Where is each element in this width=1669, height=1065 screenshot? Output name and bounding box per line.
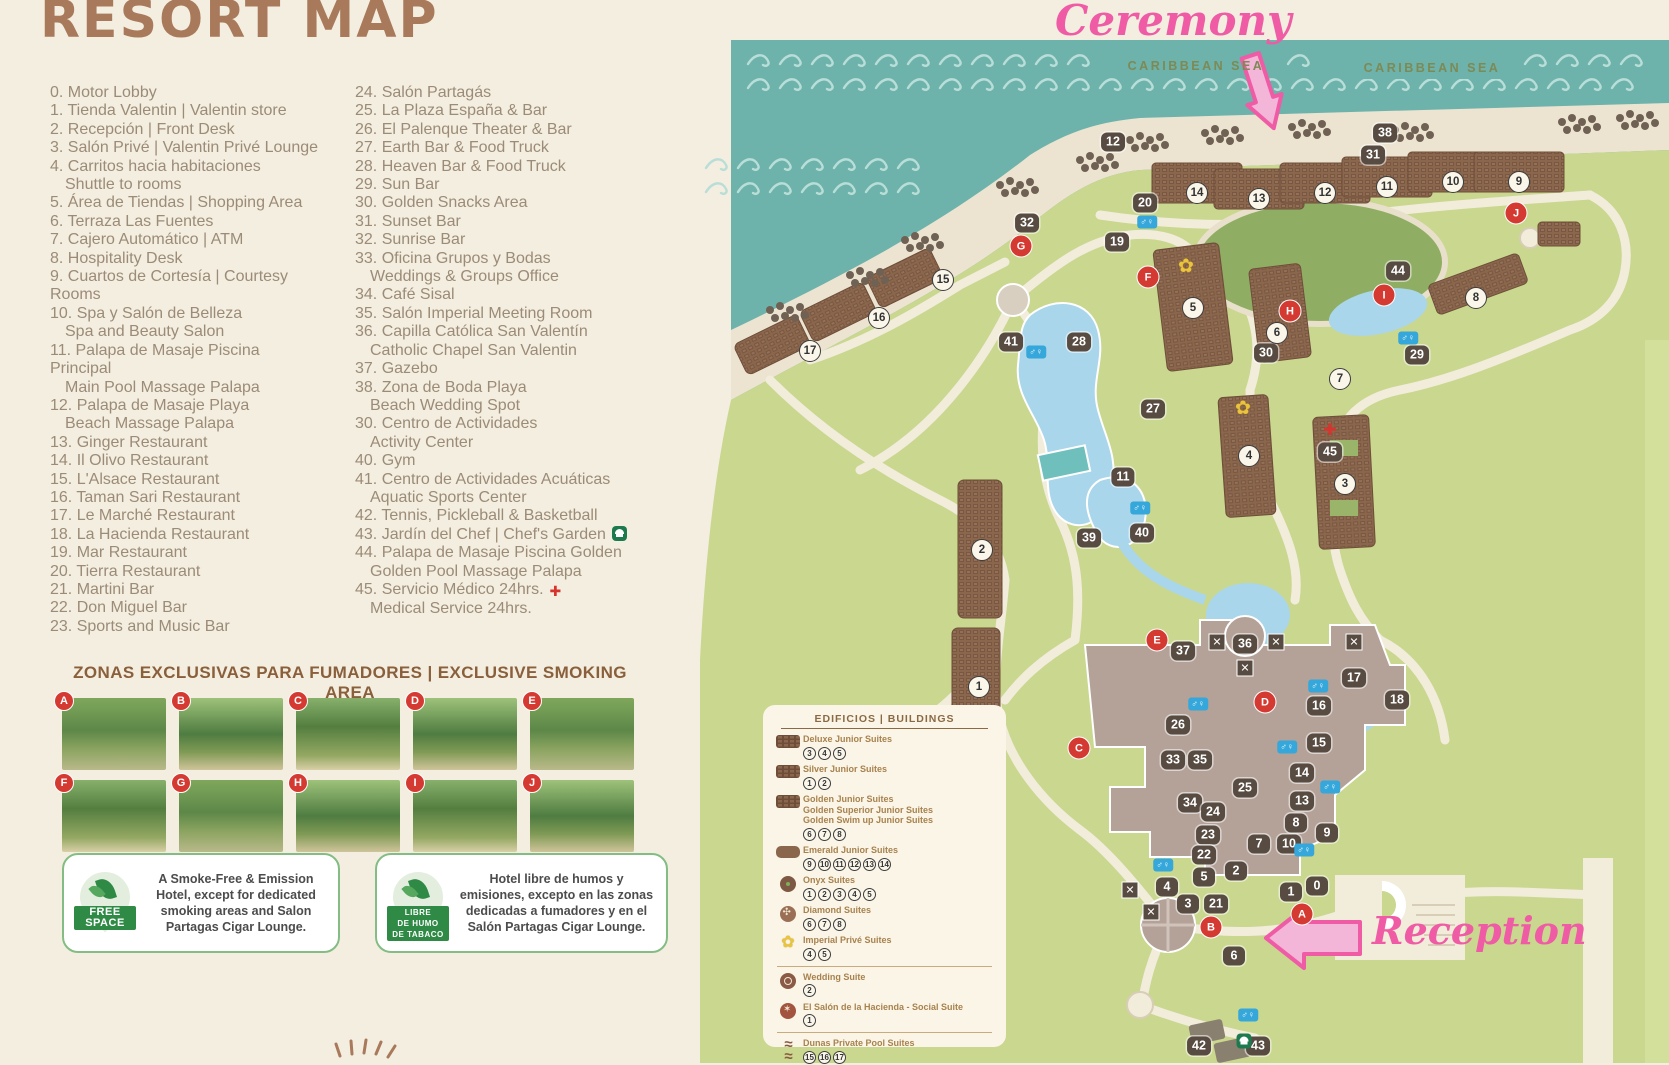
restroom-icon: ♂♀	[1137, 216, 1157, 229]
smoking-area-photo-D: D	[413, 698, 517, 770]
legend-unit-number: 15	[803, 1051, 816, 1064]
facility-badge-22: 22	[1192, 846, 1216, 865]
facility-badge-18: 18	[1385, 691, 1409, 710]
trellis-icon: ✕	[1143, 904, 1160, 921]
smoking-area-photo-F: F	[62, 780, 166, 852]
medical-cross-icon: ✚	[1323, 420, 1336, 440]
directory-item: 0. Motor Lobby	[50, 84, 352, 102]
medical-icon: ✚	[550, 582, 562, 600]
directory-item: 44. Palapa de Masaje Piscina GoldenGolde…	[355, 544, 690, 581]
facility-badge-11: 11	[1111, 468, 1134, 487]
facility-badge-2: 2	[1225, 862, 1247, 881]
smoking-area-photo-A: A	[62, 698, 166, 770]
directory-line: Medical Service 24hrs.	[355, 600, 690, 618]
directory-line: Beach Massage Palapa	[50, 415, 352, 433]
directory-item: 3. Salón Privé | Valentin Privé Lounge	[50, 139, 352, 157]
photo-letter-badge: H	[288, 773, 308, 793]
photo-letter-badge: I	[405, 773, 425, 793]
directory-line: Shuttle to rooms	[50, 176, 352, 194]
legend-row-golden: Golden Junior SuitesGolden Superior Juni…	[773, 794, 996, 841]
facility-badge-23: 23	[1196, 826, 1220, 845]
directory-line: 19. Mar Restaurant	[50, 544, 352, 562]
directory-line: 1. Tienda Valentin | Valentin store	[50, 102, 352, 120]
directory-line: 35. Salón Imperial Meeting Room	[355, 305, 690, 323]
directory-line: 42. Tennis, Pickleball & Basketball	[355, 507, 690, 525]
smoking-letter-I: I	[1373, 284, 1396, 307]
directory-item: 4. Carritos hacia habitacionesShuttle to…	[50, 158, 352, 195]
legend-unit-number: 5	[863, 888, 876, 901]
directory-line: 32. Sunrise Bar	[355, 231, 690, 249]
facility-badge-1: 1	[1280, 883, 1302, 902]
directory-item: 7. Cajero Automático | ATM	[50, 231, 352, 249]
directory-item: 9. Cuartos de Cortesía | CourtesyRooms	[50, 268, 352, 305]
directory-item: 21. Martini Bar	[50, 581, 352, 599]
directory-line: 31. Sunset Bar	[355, 213, 690, 231]
directory-line: 29. Sun Bar	[355, 176, 690, 194]
facility-badge-31: 31	[1361, 146, 1385, 165]
directory-item: 2. Recepción | Front Desk	[50, 121, 352, 139]
directory-item: 45. Servicio Médico 24hrs.✚Medical Servi…	[355, 581, 690, 619]
diamond-suite-icon	[773, 905, 803, 931]
facility-badge-32: 32	[1015, 214, 1039, 233]
smoke-free-text-en: A Smoke-Free & Emission Hotel, except fo…	[144, 871, 328, 935]
legend-row-deluxe: Deluxe Junior Suites345	[773, 734, 996, 760]
facility-badge-8: 8	[1285, 814, 1307, 833]
directory-line: 14. Il Olivo Restaurant	[50, 452, 352, 470]
smoking-letter-H: H	[1279, 300, 1302, 323]
legend-unit-number: 5	[818, 948, 831, 961]
directory-line: 4. Carritos hacia habitaciones	[50, 158, 352, 176]
legend-row-emerald: Emerald Junior Suites91011121314	[773, 845, 996, 871]
legend-unit-number: 13	[863, 858, 876, 871]
directory-item: 22. Don Miguel Bar	[50, 599, 352, 617]
smoking-letter-F: F	[1137, 266, 1160, 289]
facility-badge-24: 24	[1201, 803, 1225, 822]
building-circle-16: 16	[868, 307, 890, 329]
facility-badge-39: 39	[1077, 529, 1101, 548]
directory-item: 42. Tennis, Pickleball & Basketball	[355, 507, 690, 525]
ceremony-annotation: Ceremony	[1055, 0, 1275, 45]
legend-unit-number: 4	[818, 747, 831, 760]
trellis-icon: ✕	[1268, 634, 1285, 651]
photo-letter-badge: J	[522, 773, 542, 793]
legend-label: El Salón de la Hacienda - Social Suite	[803, 1002, 996, 1013]
directory-line: 13. Ginger Restaurant	[50, 434, 352, 452]
directory-line: Main Pool Massage Palapa	[50, 379, 352, 397]
smoking-area-photo-H: H	[296, 780, 400, 852]
legend-label: Imperial Privé Suites	[803, 935, 996, 946]
legend-unit-number: 4	[803, 948, 816, 961]
legend-label: Golden Swim up Junior Suites	[803, 815, 996, 826]
smoking-area-photo-G: G	[179, 780, 283, 852]
facility-badge-30: 30	[1254, 344, 1278, 363]
directory-item: 19. Mar Restaurant	[50, 544, 352, 562]
legend-unit-number: 3	[803, 747, 816, 760]
facility-badge-36: 36	[1233, 635, 1257, 654]
photo-letter-badge: C	[288, 691, 308, 711]
facility-badge-28: 28	[1067, 333, 1091, 352]
directory-item: 20. Tierra Restaurant	[50, 563, 352, 581]
legend-unit-number: 11	[833, 858, 846, 871]
facility-badge-17: 17	[1342, 669, 1366, 688]
smoking-area-photo-I: I	[413, 780, 517, 852]
libre-badge: LIBREDE HUMODE TABACO	[387, 906, 449, 941]
legend-label: Emerald Junior Suites	[803, 845, 996, 856]
directory-line: 15. L'Alsace Restaurant	[50, 471, 352, 489]
smoking-letter-E: E	[1146, 629, 1169, 652]
smoking-letter-C: C	[1068, 737, 1091, 760]
legend-label: Dunas Private Pool Suites	[803, 1038, 996, 1049]
photo-letter-badge: E	[522, 691, 542, 711]
restroom-icon: ♂♀	[1320, 781, 1340, 794]
directory-line: 17. Le Marché Restaurant	[50, 507, 352, 525]
directory-item: 18. La Hacienda Restaurant	[50, 526, 352, 544]
legend-unit-number: 9	[803, 858, 816, 871]
directory-line: Rooms	[50, 286, 352, 304]
directory-item: 36. Capilla Católica San ValentínCatholi…	[355, 323, 690, 360]
directory-item: 37. Gazebo	[355, 360, 690, 378]
buildings-legend: EDIFICIOS | BUILDINGS Deluxe Junior Suit…	[763, 705, 1006, 1047]
caribbean-sea-label-1: CARIBBEAN SEA	[1128, 59, 1265, 73]
legend-unit-number: 7	[818, 828, 831, 841]
facility-badge-16: 16	[1307, 697, 1331, 716]
legend-unit-number: 6	[803, 918, 816, 931]
legend-unit-number: 8	[833, 828, 846, 841]
directory-item: 26. El Palenque Theater & Bar	[355, 121, 690, 139]
building-circle-5: 5	[1182, 297, 1204, 319]
smoke-free-box-en: FREESPACE A Smoke-Free & Emission Hotel,…	[62, 853, 340, 953]
legend-label: Onyx Suites	[803, 875, 996, 886]
directory-line: 20. Tierra Restaurant	[50, 563, 352, 581]
directory-item: 35. Salón Imperial Meeting Room	[355, 305, 690, 323]
directory-item: 29. Sun Bar	[355, 176, 690, 194]
building-circle-3: 3	[1334, 473, 1356, 495]
facility-badge-44: 44	[1386, 262, 1410, 281]
facility-badge-14: 14	[1290, 764, 1314, 783]
imperial-flower-icon: ✿	[1178, 255, 1194, 277]
directory-line: 8. Hospitality Desk	[50, 250, 352, 268]
golden-suite-icon	[773, 794, 803, 841]
directory-item: 5. Área de Tiendas | Shopping Area	[50, 194, 352, 212]
chef-icon	[612, 526, 627, 541]
emerald-suite-icon	[773, 845, 803, 871]
directory-line: 26. El Palenque Theater & Bar	[355, 121, 690, 139]
legend-row-diamond: Diamond Suites678	[773, 905, 996, 931]
facility-badge-21: 21	[1204, 895, 1228, 914]
facility-badge-20: 20	[1133, 194, 1157, 213]
silver-suite-icon	[773, 764, 803, 790]
smoking-letter-B: B	[1200, 916, 1223, 939]
directory-line: 43. Jardín del Chef | Chef's Garden	[355, 526, 690, 544]
smoking-letter-D: D	[1254, 691, 1277, 714]
resort-map-page: { "title": "RESORT MAP", "directory": { …	[0, 0, 1669, 1063]
imperial-flower-icon: ✿	[1235, 397, 1251, 419]
directory-line: 16. Taman Sari Restaurant	[50, 489, 352, 507]
directory-line: 9. Cuartos de Cortesía | Courtesy	[50, 268, 352, 286]
restroom-icon: ♂♀	[1026, 346, 1046, 359]
building-circle-7: 7	[1329, 368, 1351, 390]
directory-line: 27. Earth Bar & Food Truck	[355, 139, 690, 157]
directory-item: 27. Earth Bar & Food Truck	[355, 139, 690, 157]
deluxe-suite-icon	[773, 734, 803, 760]
facility-badge-40: 40	[1130, 524, 1154, 543]
facility-badge-12: 12	[1101, 133, 1125, 152]
directory-line: 6. Terraza Las Fuentes	[50, 213, 352, 231]
directory-line: Activity Center	[355, 434, 690, 452]
directory-column-2: 24. Salón Partagás25. La Plaza España & …	[355, 84, 690, 619]
legend-unit-number: 1	[803, 1014, 816, 1027]
trellis-icon: ✕	[1122, 882, 1139, 899]
legend-unit-number: 10	[818, 858, 831, 871]
directory-line: 34. Café Sisal	[355, 286, 690, 304]
directory-item: 31. Sunset Bar	[355, 213, 690, 231]
directory-line: Aquatic Sports Center	[355, 489, 690, 507]
legend-label: Wedding Suite	[803, 972, 996, 983]
building-circle-2: 2	[971, 539, 993, 561]
facility-badge-6: 6	[1223, 947, 1245, 966]
smoking-area-photo-C: C	[296, 698, 400, 770]
directory-line: 30. Centro de Actividades	[355, 415, 690, 433]
directory-line: 18. La Hacienda Restaurant	[50, 526, 352, 544]
directory-line: 22. Don Miguel Bar	[50, 599, 352, 617]
directory-line: 41. Centro de Actividades Acuáticas	[355, 471, 690, 489]
legend-unit-number: 2	[818, 777, 831, 790]
photo-letter-badge: G	[171, 773, 191, 793]
buildings-legend-title: EDIFICIOS | BUILDINGS	[781, 713, 988, 729]
legend-label: Golden Superior Junior Suites	[803, 805, 996, 816]
directory-line: 2. Recepción | Front Desk	[50, 121, 352, 139]
photo-letter-badge: D	[405, 691, 425, 711]
reception-annotation: Reception	[1372, 908, 1572, 953]
directory-line: 28. Heaven Bar & Food Truck	[355, 158, 690, 176]
legend-unit-number: 2	[818, 888, 831, 901]
directory-item: 17. Le Marché Restaurant	[50, 507, 352, 525]
facility-badge-37: 37	[1171, 642, 1195, 661]
legend-unit-number: 16	[818, 1051, 831, 1064]
directory-line: 24. Salón Partagás	[355, 84, 690, 102]
facility-badge-7: 7	[1248, 835, 1270, 854]
trellis-icon: ✕	[1237, 660, 1254, 677]
directory-line: Beach Wedding Spot	[355, 397, 690, 415]
directory-line: 36. Capilla Católica San Valentín	[355, 323, 690, 341]
legend-unit-number: 2	[803, 984, 816, 997]
directory-item: 28. Heaven Bar & Food Truck	[355, 158, 690, 176]
building-circle-4: 4	[1238, 445, 1260, 467]
smoking-letter-A: A	[1291, 903, 1314, 926]
caribbean-sea-label-2: CARIBBEAN SEA	[1364, 61, 1501, 75]
building-circle-17: 17	[799, 340, 821, 362]
directory-item: 11. Palapa de Masaje PiscinaPrincipalMai…	[50, 342, 352, 397]
building-circle-8: 8	[1465, 287, 1487, 309]
building-circle-15: 15	[932, 269, 954, 291]
leaf-pin-icon: LIBREDE HUMODE TABACO	[387, 868, 449, 938]
facility-badge-41: 41	[999, 333, 1023, 352]
building-circle-9: 9	[1508, 171, 1530, 193]
directory-line: 44. Palapa de Masaje Piscina Golden	[355, 544, 690, 562]
legend-unit-number: 1	[803, 777, 816, 790]
building-circle-6: 6	[1266, 322, 1288, 344]
legend-label: Silver Junior Suites	[803, 764, 996, 775]
onyx-suite-icon	[773, 875, 803, 901]
legend-divider	[777, 1032, 992, 1033]
directory-item: 15. L'Alsace Restaurant	[50, 471, 352, 489]
chef-garden-icon	[1237, 1034, 1252, 1049]
building-circle-11: 11	[1376, 176, 1398, 198]
directory-item: 40. Gym	[355, 452, 690, 470]
facility-badge-26: 26	[1166, 716, 1190, 735]
building-circle-13: 13	[1248, 188, 1270, 210]
legend-row-onyx: Onyx Suites12345	[773, 875, 996, 901]
directory-item: 32. Sunrise Bar	[355, 231, 690, 249]
smoking-area-photo-E: E	[530, 698, 634, 770]
building-circle-12: 12	[1314, 182, 1336, 204]
legend-unit-number: 8	[833, 918, 846, 931]
directory-item: 43. Jardín del Chef | Chef's Garden	[355, 526, 690, 544]
directory-item: 10. Spa y Salón de BellezaSpa and Beauty…	[50, 305, 352, 342]
directory-item: 41. Centro de Actividades AcuáticasAquat…	[355, 471, 690, 508]
directory-item: 13. Ginger Restaurant	[50, 434, 352, 452]
restroom-icon: ♂♀	[1130, 502, 1150, 515]
directory-line: 11. Palapa de Masaje Piscina	[50, 342, 352, 360]
directory-line: 21. Martini Bar	[50, 581, 352, 599]
directory-line: 5. Área de Tiendas | Shopping Area	[50, 194, 352, 212]
facility-badge-45: 45	[1318, 443, 1342, 462]
facility-badge-42: 42	[1187, 1037, 1211, 1056]
facility-badge-9: 9	[1316, 824, 1338, 843]
smoking-area-header: ZONAS EXCLUSIVAS PARA FUMADORES | EXCLUS…	[60, 663, 640, 703]
directory-item: 12. Palapa de Masaje PlayaBeach Massage …	[50, 397, 352, 434]
restroom-icon: ♂♀	[1277, 741, 1297, 754]
legend-unit-number: 12	[848, 858, 861, 871]
directory-item: 34. Café Sisal	[355, 286, 690, 304]
directory-item: 6. Terraza Las Fuentes	[50, 213, 352, 231]
restroom-icon: ♂♀	[1188, 698, 1208, 711]
facility-badge-35: 35	[1188, 751, 1212, 770]
directory-line: 25. La Plaza España & Bar	[355, 102, 690, 120]
directory-column-1: 0. Motor Lobby1. Tienda Valentin | Valen…	[50, 84, 352, 636]
directory-item: 30. Golden Snacks Area	[355, 194, 690, 212]
restroom-icon: ♂♀	[1398, 332, 1418, 345]
facility-badge-15: 15	[1307, 734, 1331, 753]
directory-line: 0. Motor Lobby	[50, 84, 352, 102]
directory-line: 45. Servicio Médico 24hrs.✚	[355, 581, 690, 600]
restroom-icon: ♂♀	[1294, 844, 1314, 857]
facility-badge-27: 27	[1141, 400, 1165, 419]
trellis-icon: ✕	[1209, 634, 1226, 651]
facility-badge-3: 3	[1177, 895, 1199, 914]
directory-item: 24. Salón Partagás	[355, 84, 690, 102]
smoke-free-box-es: LIBREDE HUMODE TABACO Hotel libre de hum…	[375, 853, 668, 953]
directory-line: 7. Cajero Automático | ATM	[50, 231, 352, 249]
imperial-suite-icon: ✿	[773, 935, 803, 961]
directory-line: 37. Gazebo	[355, 360, 690, 378]
free-space-badge: FREESPACE	[74, 906, 136, 930]
restroom-icon: ♂♀	[1238, 1009, 1258, 1022]
smoking-area-photo-J: J	[530, 780, 634, 852]
legend-row-wedding: Wedding Suite2	[773, 972, 996, 998]
directory-line: 40. Gym	[355, 452, 690, 470]
directory-line: Catholic Chapel San Valentin	[355, 342, 690, 360]
directory-line: 30. Golden Snacks Area	[355, 194, 690, 212]
directory-line: 33. Oficina Grupos y Bodas	[355, 250, 690, 268]
legend-row-dunas: ≈≈Dunas Private Pool Suites151617	[773, 1038, 996, 1064]
legend-row-imperial: ✿Imperial Privé Suites45	[773, 935, 996, 961]
facility-badge-13: 13	[1290, 792, 1314, 811]
legend-unit-number: 1	[803, 888, 816, 901]
legend-unit-number: 14	[878, 858, 891, 871]
facility-badge-0: 0	[1306, 877, 1328, 896]
legend-label: Deluxe Junior Suites	[803, 734, 996, 745]
legend-unit-number: 6	[803, 828, 816, 841]
legend-unit-number: 5	[833, 747, 846, 760]
directory-line: Weddings & Groups Office	[355, 268, 690, 286]
hacienda-suite-icon	[773, 1002, 803, 1028]
directory-item: 8. Hospitality Desk	[50, 250, 352, 268]
directory-item: 14. Il Olivo Restaurant	[50, 452, 352, 470]
directory-item: 25. La Plaza España & Bar	[355, 102, 690, 120]
wedding-suite-icon	[773, 972, 803, 998]
directory-line: 12. Palapa de Masaje Playa	[50, 397, 352, 415]
smoking-area-photos: ABCDEFGHIJ	[62, 698, 647, 852]
page-title: RESORT MAP	[40, 0, 439, 50]
restroom-icon: ♂♀	[1308, 680, 1328, 693]
facility-badge-38: 38	[1373, 124, 1397, 143]
facility-badge-33: 33	[1161, 751, 1185, 770]
trellis-icon: ✕	[1346, 634, 1363, 651]
directory-item: 16. Taman Sari Restaurant	[50, 489, 352, 507]
directory-line: 23. Sports and Music Bar	[50, 618, 352, 636]
directory-item: 33. Oficina Grupos y BodasWeddings & Gro…	[355, 250, 690, 287]
directory-line: Spa and Beauty Salon	[50, 323, 352, 341]
restroom-icon: ♂♀	[1153, 859, 1173, 872]
building-circle-1: 1	[968, 676, 990, 698]
directory-line: 10. Spa y Salón de Belleza	[50, 305, 352, 323]
facility-badge-29: 29	[1405, 346, 1429, 365]
facility-badge-5: 5	[1193, 868, 1215, 887]
leaf-pin-icon: FREESPACE	[74, 868, 136, 938]
smoking-area-photo-B: B	[179, 698, 283, 770]
directory-item: 30. Centro de ActividadesActivity Center	[355, 415, 690, 452]
directory-line: Principal	[50, 360, 352, 378]
dunas-suite-icon: ≈≈	[773, 1038, 803, 1064]
directory-item: 23. Sports and Music Bar	[50, 618, 352, 636]
photo-letter-badge: F	[54, 773, 74, 793]
directory-line: 38. Zona de Boda Playa	[355, 379, 690, 397]
building-circle-10: 10	[1442, 171, 1464, 193]
directory-line: Golden Pool Massage Palapa	[355, 563, 690, 581]
legend-divider	[777, 966, 992, 967]
photo-letter-badge: A	[54, 691, 74, 711]
facility-badge-34: 34	[1178, 794, 1202, 813]
building-circle-14: 14	[1186, 182, 1208, 204]
legend-unit-number: 3	[833, 888, 846, 901]
legend-unit-number: 4	[848, 888, 861, 901]
directory-item: 1. Tienda Valentin | Valentin store	[50, 102, 352, 120]
legend-label: Diamond Suites	[803, 905, 996, 916]
smoking-letter-J: J	[1505, 202, 1528, 225]
legend-row-hacienda: El Salón de la Hacienda - Social Suite1	[773, 1002, 996, 1028]
directory-item: 38. Zona de Boda PlayaBeach Wedding Spot	[355, 379, 690, 416]
legend-row-silver: Silver Junior Suites12	[773, 764, 996, 790]
directory-line: 3. Salón Privé | Valentin Privé Lounge	[50, 139, 352, 157]
photo-letter-badge: B	[171, 691, 191, 711]
facility-badge-25: 25	[1233, 779, 1257, 798]
legend-unit-number: 7	[818, 918, 831, 931]
smoke-free-text-es: Hotel libre de humos y emisiones, except…	[457, 871, 656, 935]
smoking-letter-G: G	[1010, 235, 1033, 258]
legend-label: Golden Junior Suites	[803, 794, 996, 805]
legend-unit-number: 17	[833, 1051, 846, 1064]
